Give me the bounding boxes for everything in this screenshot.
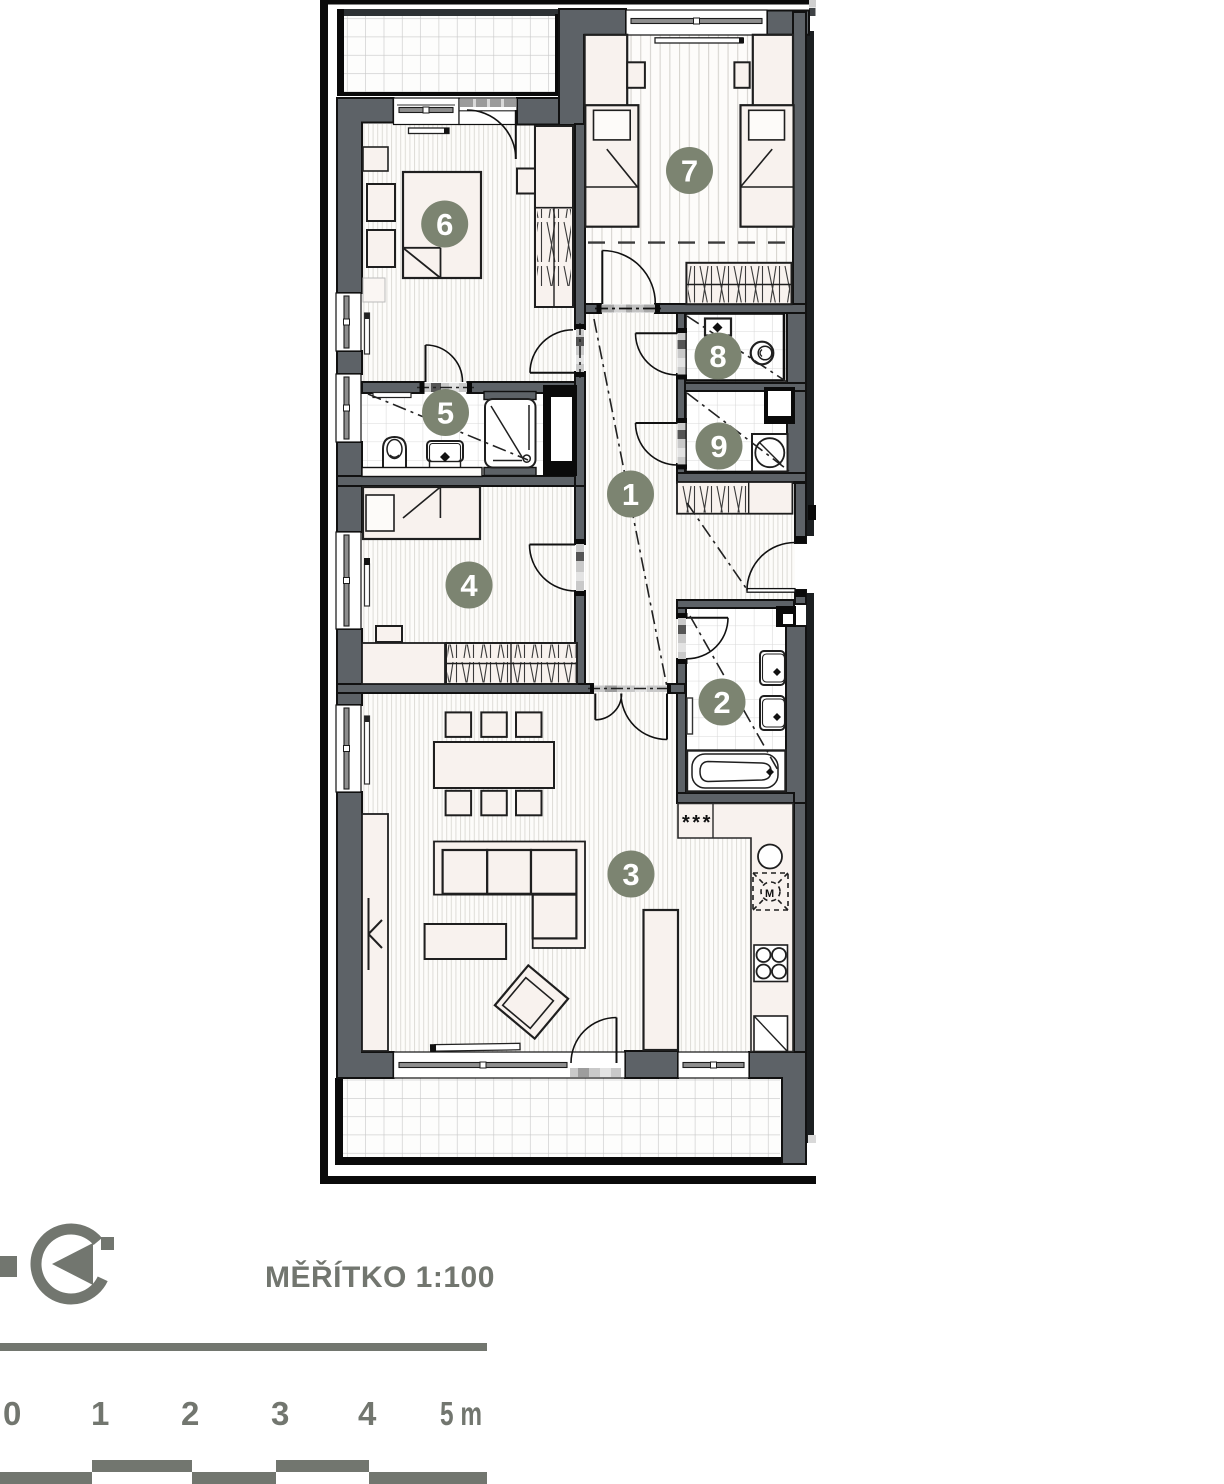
svg-text:2: 2	[181, 1395, 199, 1432]
svg-text:1: 1	[622, 477, 639, 512]
svg-text:8: 8	[709, 339, 726, 374]
svg-text:***: ***	[682, 812, 713, 834]
svg-text:9: 9	[710, 429, 727, 464]
svg-text:5: 5	[437, 396, 454, 431]
svg-text:1: 1	[91, 1395, 109, 1432]
svg-text:6: 6	[436, 207, 453, 242]
svg-text:3: 3	[622, 857, 639, 892]
svg-text:5 m: 5 m	[440, 1395, 482, 1432]
svg-text:7: 7	[681, 154, 698, 189]
svg-text:M: M	[765, 888, 774, 900]
svg-text:3: 3	[271, 1395, 289, 1432]
svg-text:2: 2	[713, 685, 730, 720]
svg-text:4: 4	[460, 568, 478, 603]
svg-text:MĚŘÍTKO 1:100: MĚŘÍTKO 1:100	[265, 1260, 495, 1294]
svg-text:4: 4	[358, 1395, 377, 1432]
svg-text:0: 0	[3, 1395, 21, 1432]
